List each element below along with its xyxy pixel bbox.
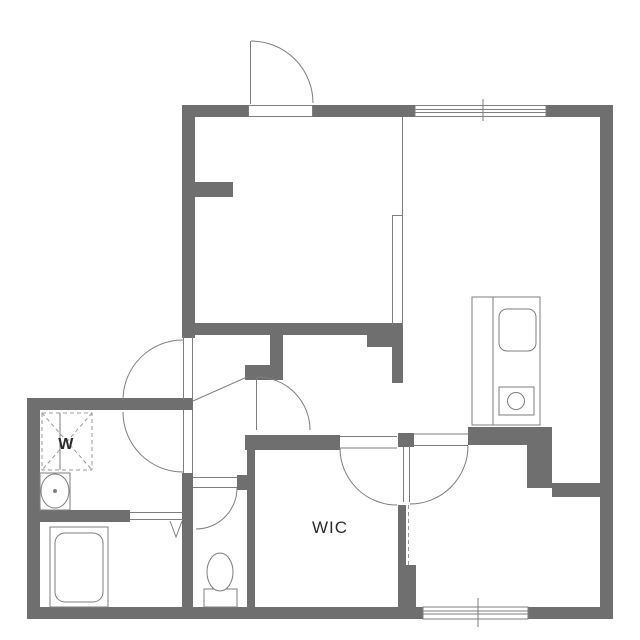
wall-left-upper	[182, 117, 195, 338]
wall-washroom-top	[27, 398, 193, 410]
washroom-doorway-frame	[184, 410, 193, 473]
wall-partition-bottom	[398, 565, 416, 607]
angled-wall-line	[193, 377, 247, 401]
wall-top-left	[182, 105, 248, 117]
vanity-faucet-dot	[54, 490, 57, 493]
wic-left-doorway-frame	[340, 437, 397, 449]
fixtures	[40, 297, 540, 607]
wall-bottom-left	[27, 607, 423, 619]
wic-right-door-arc	[410, 446, 468, 504]
floor-plan-page: W WIC	[0, 0, 640, 640]
wall-top-mid	[313, 105, 415, 117]
wall-under-counter	[468, 427, 552, 445]
toilet-doorway-frame	[193, 478, 237, 488]
window-top	[415, 106, 546, 117]
wall-corridor-bottom	[245, 435, 340, 450]
wall-wic-post	[398, 433, 414, 447]
wic-label: WIC	[312, 518, 348, 537]
wall-left-mid	[182, 473, 193, 607]
entrance-door-arc	[251, 41, 313, 103]
wic-right-doorway-frame	[414, 434, 468, 446]
living-door-arc	[257, 377, 310, 430]
wic-left-door-arc	[340, 448, 397, 505]
wall-ldk-stub	[392, 335, 403, 383]
wall-bedroom-stub	[195, 182, 233, 197]
kitchen-sink-icon	[499, 309, 536, 351]
window-bottom	[423, 607, 528, 619]
stove-burner-icon	[508, 393, 525, 410]
sliding-door-channel	[393, 216, 403, 326]
floor-plan-canvas: W WIC	[0, 0, 640, 640]
wall-partition-top	[398, 505, 406, 565]
wic-door-leaves	[404, 446, 410, 502]
bathtub-inner-icon	[55, 533, 103, 602]
window-bottom-panes	[423, 611, 528, 614]
toilet-tank-icon	[204, 589, 237, 607]
toilet-bowl-icon	[207, 553, 233, 591]
wall-top-right	[546, 105, 613, 117]
wall-right	[600, 117, 613, 618]
bath-doorway-frame	[130, 513, 183, 520]
entrance-frame	[248, 105, 313, 117]
bath-folding-door-icon	[170, 521, 182, 537]
wall-hall-top	[190, 323, 403, 335]
wall-bottom-right	[528, 607, 613, 619]
window-top-panes	[415, 110, 546, 113]
wall-toilet-right	[247, 447, 255, 607]
wall-toilet-stub	[237, 475, 247, 490]
washer-label: W	[58, 436, 74, 453]
genkan-door-arc	[123, 340, 183, 400]
wall-bath-divider	[28, 510, 130, 522]
genkan-doorway-frame	[184, 336, 193, 400]
toilet-door-arc	[196, 488, 237, 529]
wall-step-horizontal	[552, 483, 607, 497]
washroom-door-arc	[123, 412, 183, 472]
wall-step-vertical	[527, 445, 552, 488]
